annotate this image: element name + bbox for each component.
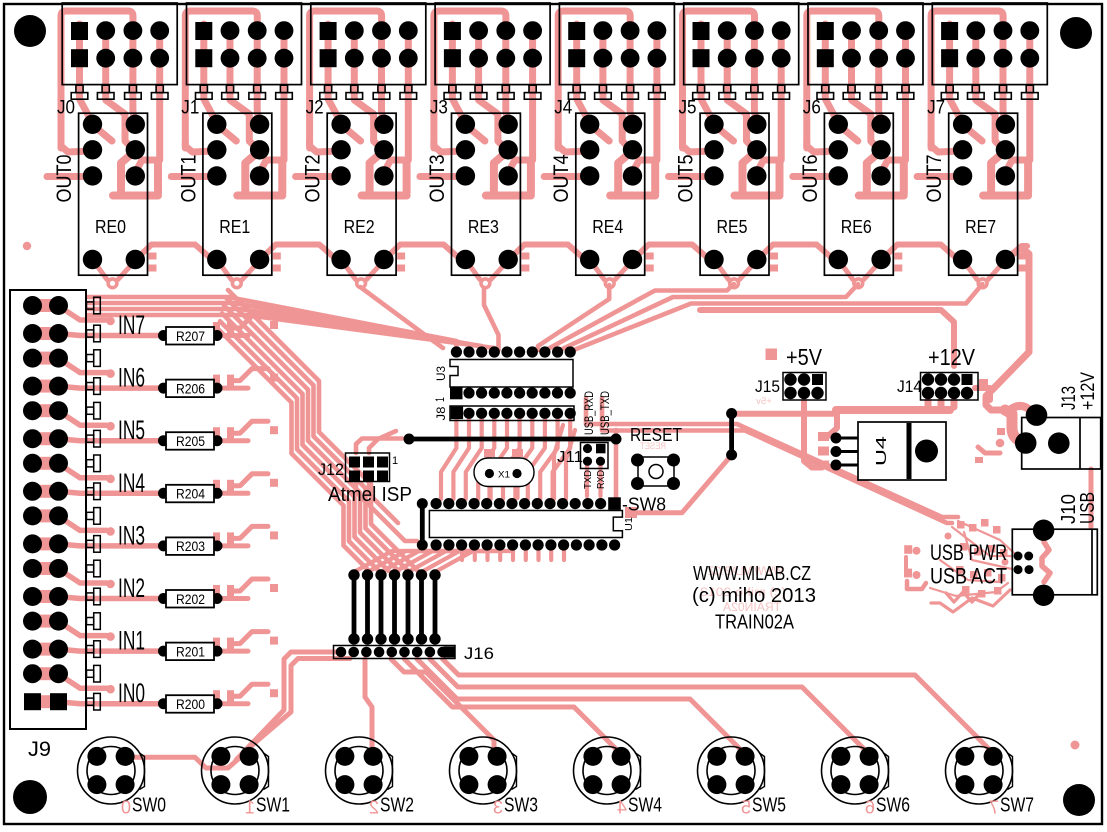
svg-text:(c) miho 2013: (c) miho 2013	[692, 584, 816, 607]
svg-text:R204: R204	[176, 487, 205, 502]
svg-text:RE1: RE1	[219, 217, 250, 237]
svg-text:RXD: RXD	[596, 470, 607, 489]
svg-text:OUT6: OUT6	[799, 155, 822, 203]
svg-text:OUT5: OUT5	[675, 155, 698, 203]
svg-text:RE7: RE7	[965, 217, 996, 237]
svg-text:+5V: +5V	[786, 344, 823, 370]
svg-text:RE4: RE4	[592, 217, 623, 237]
svg-text:OUT2: OUT2	[302, 155, 325, 203]
svg-text:OUT4: OUT4	[550, 154, 573, 202]
svg-text:0: 0	[121, 798, 131, 818]
svg-text:J12: J12	[318, 460, 344, 479]
svg-text:SW3: SW3	[504, 795, 538, 817]
svg-text:RESET: RESET	[630, 425, 682, 445]
svg-text:J8: J8	[434, 406, 448, 420]
svg-text:USB_TXD: USB_TXD	[600, 391, 612, 435]
svg-text:U1: U1	[623, 517, 635, 531]
svg-text:R201: R201	[176, 644, 205, 659]
svg-text:Atmel ISP: Atmel ISP	[328, 484, 412, 506]
svg-text:OUT3: OUT3	[426, 155, 449, 203]
svg-text:J9: J9	[28, 738, 51, 761]
svg-text:J15: J15	[755, 377, 780, 396]
svg-text:SW4: SW4	[628, 795, 662, 817]
svg-text:IN1: IN1	[118, 626, 145, 656]
svg-text:USB: USB	[1077, 492, 1099, 524]
svg-text:OUT0: OUT0	[53, 155, 76, 203]
svg-text:SW1: SW1	[256, 795, 290, 817]
svg-text:SW7: SW7	[1000, 795, 1034, 817]
svg-text:SW2: SW2	[380, 795, 414, 817]
svg-text:OUT7: OUT7	[923, 155, 946, 203]
svg-text:WWW.MLAB.CZ: WWW.MLAB.CZ	[693, 562, 811, 585]
svg-text:IN5: IN5	[118, 415, 145, 445]
svg-text:3: 3	[493, 798, 503, 818]
svg-text:J3: J3	[430, 98, 448, 119]
svg-text:J4: J4	[554, 98, 572, 119]
svg-text:J5: J5	[679, 98, 697, 119]
svg-text:U4: U4	[873, 436, 890, 466]
svg-text:IN6: IN6	[118, 363, 145, 393]
svg-text:IN3: IN3	[118, 520, 145, 550]
svg-text:J14: J14	[897, 377, 922, 396]
svg-text:J0: J0	[57, 98, 75, 119]
svg-text:J11: J11	[557, 449, 583, 466]
svg-text:IN2: IN2	[118, 573, 145, 603]
svg-text:IN4: IN4	[118, 468, 145, 498]
svg-text:R207: R207	[176, 329, 205, 344]
svg-text:R206: R206	[176, 381, 205, 396]
svg-text:RE2: RE2	[344, 217, 375, 237]
svg-text:IN0: IN0	[118, 678, 145, 708]
svg-text:RE6: RE6	[841, 217, 872, 237]
svg-text:TRAIN02A: TRAIN02A	[715, 611, 794, 634]
svg-text:7: 7	[989, 798, 999, 818]
svg-text:2: 2	[369, 798, 379, 818]
svg-text:SW5: SW5	[752, 795, 786, 817]
svg-text:J7: J7	[927, 98, 945, 119]
svg-text:SW6: SW6	[876, 795, 910, 817]
svg-text:USB PWR: USB PWR	[930, 540, 1007, 565]
svg-text:+12V: +12V	[928, 344, 976, 370]
svg-text:U3: U3	[434, 366, 448, 381]
svg-text:J6: J6	[803, 98, 821, 119]
svg-text:1: 1	[433, 397, 447, 402]
svg-text:USB_RXD: USB_RXD	[584, 391, 596, 435]
svg-text:6: 6	[865, 798, 875, 818]
svg-text:+12V: +12V	[1078, 372, 1099, 410]
svg-text:R203: R203	[176, 539, 205, 554]
svg-text:5: 5	[741, 798, 751, 818]
svg-text:RE5: RE5	[717, 217, 748, 237]
svg-text:R205: R205	[176, 434, 205, 449]
svg-text:J2: J2	[306, 98, 324, 119]
svg-text:OUT1: OUT1	[177, 155, 200, 203]
svg-text:R202: R202	[176, 592, 205, 607]
svg-text:J1: J1	[181, 98, 199, 119]
svg-text:J13: J13	[1059, 386, 1080, 410]
svg-text:4: 4	[617, 798, 627, 818]
svg-text:IN7: IN7	[118, 310, 145, 340]
svg-text:1: 1	[392, 455, 398, 467]
svg-text:-SW8: -SW8	[622, 495, 666, 515]
svg-text:RE3: RE3	[468, 217, 499, 237]
svg-text:X1: X1	[498, 470, 510, 481]
svg-text:TXD: TXD	[583, 470, 594, 489]
svg-text:1: 1	[245, 798, 255, 818]
svg-text:+5v: +5v	[755, 396, 772, 406]
svg-text:USB ACT: USB ACT	[930, 564, 1007, 589]
svg-text:RE0: RE0	[95, 217, 126, 237]
svg-text:J16: J16	[464, 644, 494, 663]
svg-text:R200: R200	[176, 697, 205, 712]
svg-text:SW0: SW0	[132, 795, 166, 817]
